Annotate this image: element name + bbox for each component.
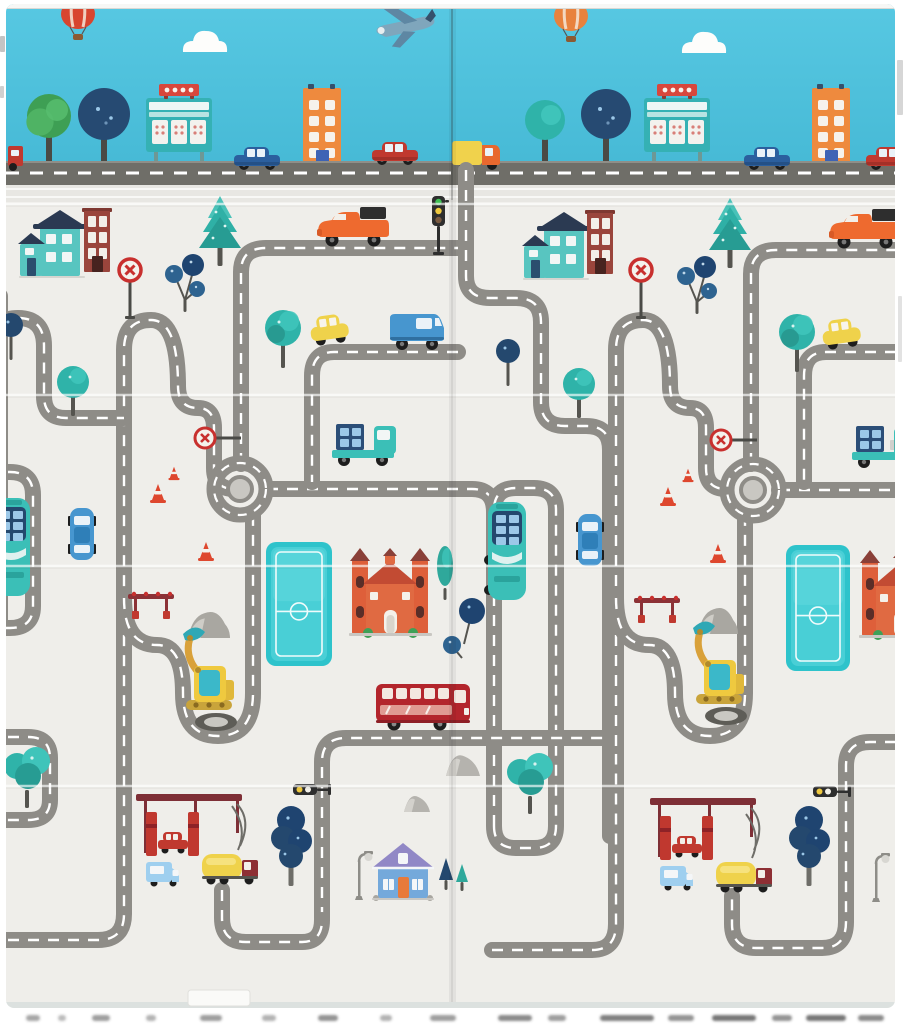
blue-car-topview: [576, 514, 604, 566]
orange-building: [303, 84, 341, 166]
orange-building: [812, 84, 850, 166]
teal-bus-topview: [484, 502, 526, 600]
play-mat-photo: [0, 0, 908, 1024]
photo-bottom-smudges: [26, 1015, 884, 1021]
brick-building: [82, 208, 112, 272]
soccer-field: [786, 545, 850, 671]
play-mat-illustration: [0, 0, 908, 1024]
mat-surface: [0, 0, 908, 1008]
blue-car-topview: [68, 508, 96, 560]
brick-building: [585, 210, 615, 274]
red-mansion: [349, 548, 432, 638]
soccer-field: [266, 542, 332, 666]
teal-bus-topview: [0, 498, 30, 596]
